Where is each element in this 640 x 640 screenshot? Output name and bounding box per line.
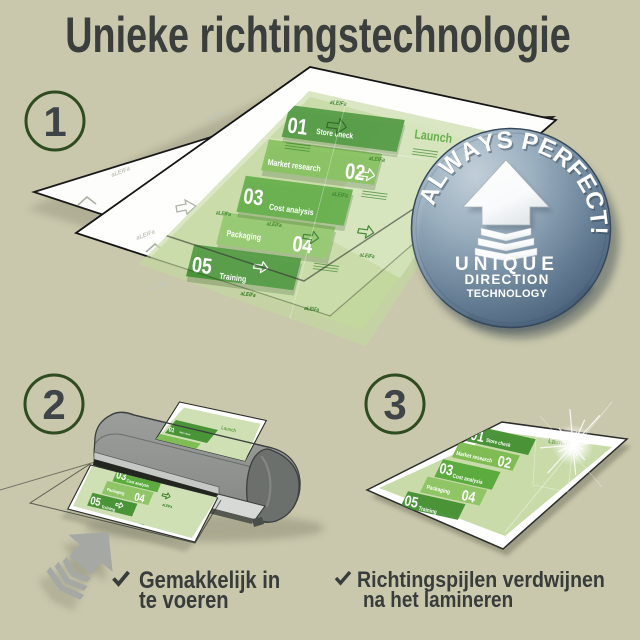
svg-text:na het lamineren: na het lamineren [363,588,513,613]
svg-text:3: 3 [383,381,406,428]
svg-text:S: S [496,127,514,155]
svg-text:1: 1 [43,98,66,145]
svg-text:TECHNOLOGY: TECHNOLOGY [467,288,548,300]
svg-text:te voeren: te voeren [139,586,229,613]
svg-text:!: ! [585,226,612,235]
svg-text:2: 2 [42,381,65,428]
svg-text:Unieke richtingstechnologie: Unieke richtingstechnologie [65,8,570,63]
svg-text:DIRECTION: DIRECTION [464,272,549,287]
